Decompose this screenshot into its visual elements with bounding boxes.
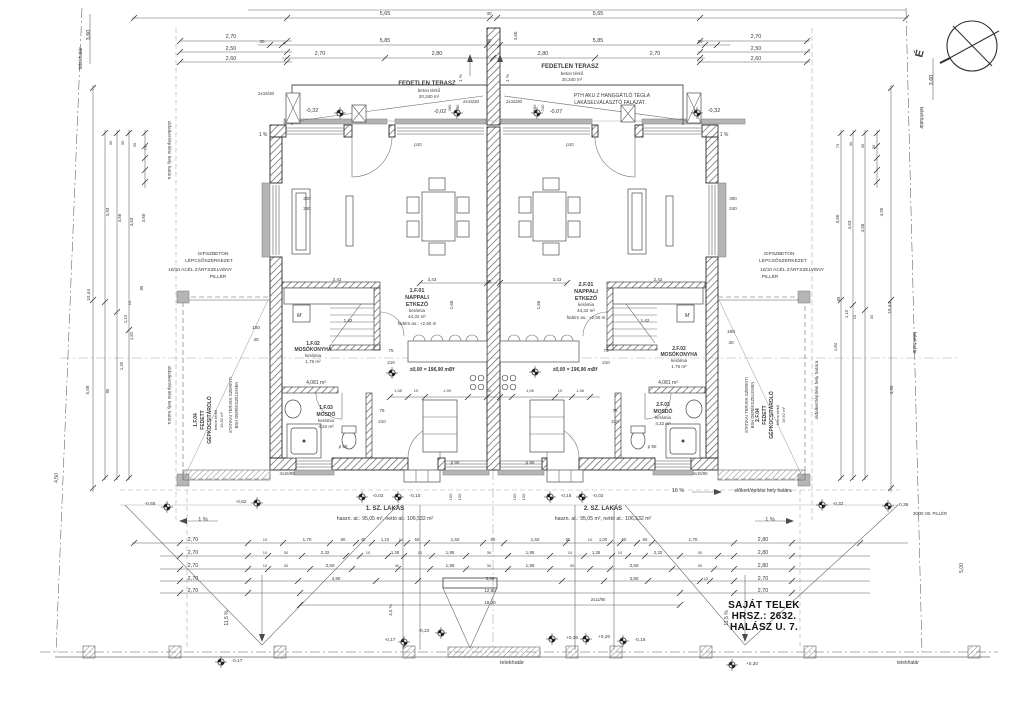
dim-label: 1,10 [844, 309, 849, 318]
dim-label: 1,95 [443, 388, 452, 393]
dim-label: 50 [415, 537, 420, 542]
dim-label: 10 [418, 550, 423, 555]
dim-label: 2,70 [315, 51, 326, 57]
dim-label: 210 [387, 360, 395, 365]
note-label: LÉPCSŐSZERKEZET [185, 257, 233, 264]
dim-label: 2,80 [432, 51, 443, 57]
plot-title: SAJÁT TELEK [698, 600, 830, 611]
dim-label: 150 [512, 493, 517, 500]
dim-label: 4,56 [860, 223, 865, 232]
dim-label: 30 [487, 388, 492, 393]
room-label: 2.F.04 [755, 408, 761, 422]
unit-summary: haszn. at.: 95,05 m², nettó at.: 106,532… [555, 516, 652, 522]
level-label: -0,10 [410, 493, 421, 499]
dim-label: 10 [588, 537, 593, 542]
level-label: -0,35 [898, 502, 909, 508]
dim-label: 2,70 [188, 576, 199, 582]
room-label: kerámia [318, 418, 335, 423]
fence-post [610, 646, 622, 658]
room-label: 16,62 m² [219, 411, 224, 427]
dim-label: 1,38 [576, 388, 585, 393]
dim-label: 30 [486, 38, 492, 43]
dim-label: 2,80 [538, 51, 549, 57]
fence-post [274, 646, 286, 658]
dim-label: 2x15/30 [463, 99, 480, 104]
dim-label: 60 [643, 537, 648, 542]
dim-label: 1,00 [599, 537, 608, 542]
dim-label: 2,60 [751, 56, 762, 62]
dim-label: 1,84 [129, 331, 134, 340]
room-label: FEDETT [762, 405, 768, 424]
dim-label: 50 [622, 537, 627, 542]
dim-label: 30 [698, 550, 703, 555]
dim-label: 180 [727, 329, 735, 335]
dim-label: 1,42 [344, 318, 353, 323]
dim-label: 1,95 [526, 550, 535, 555]
dim-label: 4x15/90 [280, 471, 296, 476]
room-label: 4,22 m² [318, 424, 334, 429]
room-label: 1.F.04 [193, 413, 199, 427]
room-label: kerámia [655, 415, 672, 420]
level-label: -0,17 [385, 637, 396, 643]
room-label: kerámia [305, 353, 322, 358]
dim-label: 150 [521, 493, 526, 500]
dim-label: p 90 [339, 444, 348, 449]
room-label: FEDETLEN TERASZ [541, 64, 599, 70]
room-label: 1,76 m² [305, 359, 321, 364]
boundary-label: telekhatár [500, 660, 524, 666]
room-label: FEDETLEN TERASZ [398, 81, 456, 87]
dim-label: 50 [566, 537, 571, 542]
plot-street: HALÁSZ U. 7. [698, 622, 830, 633]
kitchen [500, 335, 579, 452]
room-label: MOSDÓ [654, 407, 673, 415]
dim-label: 3,60 [929, 75, 935, 86]
dim-label: 2,80 [758, 537, 769, 543]
level-label: -0,32 [833, 501, 844, 507]
dim-label: 1,95 [446, 563, 455, 568]
dim-label: 40 [728, 340, 734, 346]
dim-label: 30 [869, 314, 874, 319]
dim-label: 3,60 [86, 30, 92, 41]
slope-label: 1 % [458, 74, 463, 82]
room-label: 44,32 m² [408, 314, 426, 319]
room-label: 4,22 m² [655, 421, 671, 426]
dim-label: 3,60 [630, 563, 639, 568]
window-sill [718, 183, 726, 257]
slope-label: 10 % [672, 488, 685, 494]
dim-label: 1,95 [446, 550, 455, 555]
dim-label: 85 [836, 296, 841, 301]
dim-label: 75 [388, 348, 394, 353]
dim-label: 30 [697, 39, 703, 44]
room-label: MOSÓKONYHA [661, 350, 698, 358]
dining-table [519, 178, 580, 255]
note-label: STATIKAI TERVEK SZERINTI [228, 377, 233, 433]
dim-label: p10 [414, 142, 422, 147]
dim-label: 2x15/30 [506, 99, 523, 104]
dim-label: 150 [448, 493, 453, 500]
fence-post [566, 646, 578, 658]
note-label: 10/10 ACÉL ZÁRTSZELVÉNY [168, 266, 233, 273]
north-arrow-icon: É [912, 21, 999, 71]
dim-label: 4,63 [847, 220, 852, 229]
dim-label: 2x15/30 [258, 91, 275, 96]
dim-label: 240 [455, 104, 460, 111]
level-label: -0,62 [236, 499, 247, 505]
slope-label: 1 % [765, 517, 775, 523]
dim-label: 1,38 [394, 388, 403, 393]
plot-hrsz: HRSZ.: 2632. [698, 611, 830, 622]
dim-label: 2,50 [226, 46, 237, 52]
room-label: 4,081 m² [658, 380, 678, 386]
boundary-label: telekhatár [78, 47, 84, 69]
dim-label: 3,60 [835, 214, 840, 223]
dim-label: 1,66 [449, 300, 454, 309]
dim-label: 1,38 [592, 550, 601, 555]
level-label: ±0,00 = 196,90 mBf [410, 367, 456, 373]
dim-label: 2,32 [654, 550, 663, 555]
fence-post [169, 646, 181, 658]
fence-post [968, 646, 980, 658]
room-label: 1,76 m² [671, 364, 687, 369]
dim-label: 1,50 [531, 537, 540, 542]
dim-label: 30 [487, 550, 492, 555]
dim-label: 5,58 [85, 385, 90, 394]
note-label: LAKÁSELVÁLASZTÓ FALAZAT. [574, 99, 646, 106]
sink-icon [686, 400, 702, 418]
level-label: ±0,00 = 196,90 mBf [553, 367, 599, 373]
dim-label: 3,43 [553, 277, 562, 282]
dim-label: 240 [729, 206, 737, 211]
dim-label: 75 [612, 408, 618, 413]
dim-label: 80 [491, 537, 496, 542]
dim-label: 4,90 [889, 385, 894, 394]
room-label: beton térkő [213, 409, 218, 430]
dim-label: 30 [487, 279, 492, 284]
slope-label: 1 % [198, 517, 208, 523]
dim-label: 75 [379, 408, 385, 413]
dim-label: 73 [143, 145, 148, 150]
dim-label: 1,38 [391, 550, 400, 555]
dim-label: 1,10 [381, 537, 390, 542]
level-label: -0,02 [434, 109, 447, 115]
dim-label: 2,70 [188, 550, 199, 556]
dim-label: 2,70 [751, 34, 762, 40]
room-label: GÉPKOCSITÁROLÓ [205, 396, 213, 444]
dim-label: 2,32 [321, 550, 330, 555]
room-label: 1.F.03 [319, 405, 333, 411]
room-label: NAPPALI [574, 289, 598, 295]
note-label: PILLÉR [210, 273, 227, 280]
dim-label: 4,95 [879, 207, 884, 216]
dim-label: 10 [127, 300, 132, 305]
note-label: LÉPCSŐSZERKEZET [759, 257, 807, 264]
property-boundary [40, 8, 998, 657]
dim-label: 30 [259, 39, 265, 44]
note-label: GIPSZBETON [198, 251, 229, 257]
room-label: födém as.: +2,60 m [567, 315, 606, 320]
dim-label: p 90 [451, 460, 460, 465]
dim-label: 40 [253, 337, 259, 343]
dim-label: 10 [704, 576, 709, 581]
dim-label: 10 [852, 314, 857, 319]
room-label: 4,081 m² [306, 380, 326, 386]
dim-label: 240 [303, 206, 311, 211]
dim-label: 4,93 [105, 207, 110, 216]
level-label: -0,32 [306, 108, 319, 114]
dim-label: 90 [105, 388, 110, 393]
dim-label: 5,65 [380, 11, 391, 17]
dim-label: 4,56 [117, 213, 122, 222]
washer-label: M [685, 313, 690, 319]
note-label: BSH DERÉKSZELEMEN [234, 382, 239, 429]
room-label: MOSDÓ [317, 410, 336, 418]
entry-steps [404, 470, 440, 482]
dim-label: 4,63 [129, 217, 134, 226]
dim-label: 180 [252, 325, 260, 331]
dim-label: 2,80 [758, 563, 769, 569]
dim-label: 3,60 [326, 563, 335, 568]
dim-label: 210 [378, 419, 386, 424]
dim-label: 2,70 [188, 588, 199, 594]
dim-label: 300 [303, 196, 311, 201]
room-label: ETKEZŐ [575, 295, 598, 302]
dining-table [407, 178, 469, 255]
room-label: födém as.: +2,60 m [398, 321, 437, 326]
fence-post [700, 646, 712, 658]
dim-label: 4,50 [54, 473, 60, 483]
dim-label: 1,42 [641, 318, 650, 323]
level-label: +0,20 [746, 661, 758, 667]
room-label: NAPPALI [405, 295, 429, 301]
dim-label: 2,70 [188, 563, 199, 569]
dim-label: 210 [602, 360, 610, 365]
dim-label: 3,43 [428, 277, 437, 282]
boundary-label: oldalkert/építési hely határa [166, 366, 172, 425]
dim-label: 4x15/90 [693, 471, 709, 476]
dim-label: 2,70 [758, 576, 769, 582]
dim-label: p 90 [526, 460, 535, 465]
room-label: 1.F.01 [410, 288, 425, 294]
boundary-label: telekhatár [911, 332, 917, 354]
dim-label: 3,90 [332, 576, 341, 581]
dim-label: 12,80 [484, 588, 496, 593]
room-label: beton térkő [418, 88, 441, 93]
room-label: 20,340 m² [562, 77, 583, 82]
dim-label: 5,00 [959, 563, 965, 573]
fence-post [403, 646, 415, 658]
room-label: 2.F.03 [656, 402, 670, 408]
level-label: -0,22 [419, 628, 430, 634]
window-sill [262, 183, 270, 257]
boundary-label: oldalkert/építési hely határa [166, 121, 172, 180]
dim-label: 10 [414, 388, 419, 393]
room-label: GÉPKOCSITÁROLÓ [767, 391, 775, 439]
tv-board [346, 196, 353, 246]
slope-label: 1 % [720, 132, 729, 138]
note-label: BSH DERÉKSZELEMEN [750, 382, 755, 429]
dim-label: 10 [399, 537, 404, 542]
dim-label: 3,60 [513, 31, 518, 40]
dim-label: 2,80 [758, 550, 769, 556]
dim-label: p 90 [648, 444, 657, 449]
dim-label: 75 [603, 348, 609, 353]
sink-icon [285, 400, 301, 418]
dim-label: 30 [132, 142, 137, 147]
level-label: -0,15 [561, 493, 572, 499]
room-label: 2.F.01 [579, 282, 594, 288]
level-label: -0,02 [593, 493, 604, 499]
dim-label: 30 [487, 563, 492, 568]
room-label: kerámia [409, 308, 426, 313]
dim-label: 280 [447, 104, 452, 111]
dim-label: 1,66 [536, 300, 541, 309]
boundary-label: telekhatár [897, 660, 919, 666]
dim-label: 1,70 [303, 537, 312, 542]
dim-label: 18,20 [484, 600, 496, 605]
note-label: 30/30 VB. PILLÉR [913, 511, 947, 516]
slope-label: 4,5 % [388, 604, 393, 616]
dim-label: 30 [871, 144, 876, 149]
dim-label: 1,70 [689, 537, 698, 542]
dim-label: 2,42 [333, 277, 342, 282]
washing-machine-icon [293, 305, 310, 322]
laundry-counter [284, 288, 374, 304]
note-label: PILLÉR [762, 273, 779, 280]
dim-label: 3,80 [630, 576, 639, 581]
dim-label: 2x11/90 [591, 597, 606, 602]
dim-label: 30 [395, 563, 400, 568]
dim-label: 5,85 [380, 38, 391, 44]
room-label: beton térkő [561, 71, 584, 76]
dim-label: 300 [729, 196, 737, 201]
dim-label: 3,00 [486, 576, 495, 581]
kitchen [408, 335, 487, 452]
dim-label: 30 [284, 563, 289, 568]
slope-label: 11,5 % [224, 610, 230, 626]
room-label: 16,62 m² [781, 406, 786, 422]
unit-summary: 2. SZ. LAKÁS [584, 505, 622, 512]
room-label: beton térkő [775, 404, 780, 425]
north-label: É [912, 48, 926, 58]
room-label: kerámia [578, 302, 595, 307]
boundary-label: oldalkert/építési hely határa [814, 360, 820, 419]
dim-label: 30 [108, 140, 113, 145]
dim-label: p10 [566, 142, 574, 147]
dim-label: 2,70 [188, 537, 199, 543]
level-label: +0,15 [566, 635, 578, 641]
room-label: FEDETT [200, 410, 206, 429]
dim-label: 10 [568, 550, 573, 555]
note-label: GIPSZBETON [764, 251, 795, 257]
floor-plan-drawing: É 5,65305,65305,85305,85302,702,802,802,… [0, 0, 1024, 722]
dim-label: 1,10 [123, 314, 128, 323]
dim-label: 2,70 [650, 51, 661, 57]
level-label: -0,32 [708, 108, 721, 114]
dim-label: 30 [120, 140, 125, 145]
dim-label: 10 [263, 550, 268, 555]
boundary-label: telekhatár [918, 107, 924, 129]
room-label: 20,340 m² [419, 94, 440, 99]
level-label: -0,07 [550, 109, 563, 115]
plot-title-block: SAJÁT TELEK HRSZ.: 2632. HALÁSZ U. 7. [698, 600, 830, 633]
dim-label: 30 [860, 143, 865, 148]
unit-summary: 1. SZ. LAKÁS [366, 505, 404, 512]
slope-label: 1 % [505, 74, 510, 82]
washer-label: M [297, 313, 302, 319]
dim-label: 210 [611, 419, 619, 424]
note-label: STATIKAI TERVEK SZERINTI [744, 377, 749, 433]
dim-label: 40 [361, 537, 366, 542]
dim-label: 10 [618, 550, 623, 555]
level-label: -0,17 [232, 658, 243, 664]
dim-label: 73 [835, 143, 840, 148]
dim-label: 1,95 [526, 563, 535, 568]
dim-label: 10 [263, 563, 268, 568]
dim-label: 10,44 [887, 302, 893, 314]
note-label: PTH AKU Z HANGGÁTLÓ TÉGLA [574, 92, 651, 99]
note-label: 10/10 ACÉL ZÁRTSZELVÉNY [760, 266, 825, 273]
fence-post [804, 646, 816, 658]
level-label: -0,02 [373, 493, 384, 499]
steel-column [798, 291, 810, 303]
floor-plan-canvas: É 5,65305,65305,85305,85302,702,802,802,… [0, 0, 1024, 722]
dim-label: 30 [698, 563, 703, 568]
dim-label: 5,85 [593, 38, 604, 44]
dim-label: 280 [532, 104, 537, 111]
dim-label: 30 [486, 11, 492, 16]
dim-label: 10 [263, 537, 268, 542]
dim-label: 5,65 [593, 11, 604, 17]
dim-label: 85 [139, 285, 144, 290]
dim-label: 1,95 [526, 388, 535, 393]
unit-summary: haszn. at.: 95,05 m², nettó at.: 106,532… [337, 516, 434, 522]
dim-label: 2,70 [226, 34, 237, 40]
dim-label: 10 [366, 550, 371, 555]
entry-steps [547, 470, 583, 482]
boundary-label: előkert/építési hely határa [734, 488, 791, 494]
room-label: MOSÓKONYHA [295, 345, 332, 353]
room-label: kerámia [671, 358, 688, 363]
dim-label: 1,50 [451, 537, 460, 542]
dim-label: 2,60 [226, 56, 237, 62]
dim-label: 30 [570, 563, 575, 568]
toilet-icon [631, 431, 645, 449]
dim-label: 1,84 [833, 342, 838, 351]
room-label: 44,32 m² [577, 308, 595, 313]
level-label: -0,65 [145, 501, 156, 507]
level-label: -0,15 [635, 637, 646, 643]
dim-label: 2,70 [758, 588, 769, 594]
level-label: +0,26 [598, 634, 610, 640]
dim-label: 2,50 [751, 46, 762, 52]
dim-label: 2,42 [654, 277, 663, 282]
dim-label: 10 [558, 388, 563, 393]
dim-label: 30 [848, 141, 853, 146]
fence-post [83, 646, 95, 658]
walls [270, 28, 718, 470]
dim-label: 1,30 [119, 361, 124, 370]
tv-board [666, 196, 673, 246]
dim-label: 150 [457, 493, 462, 500]
dim-label: 30 [284, 550, 289, 555]
laundry-counter [613, 288, 703, 304]
dim-label: 10,44 [86, 289, 92, 301]
dim-label: 60 [341, 537, 346, 542]
dim-label: 3,60 [141, 213, 146, 222]
steel-column [177, 291, 189, 303]
